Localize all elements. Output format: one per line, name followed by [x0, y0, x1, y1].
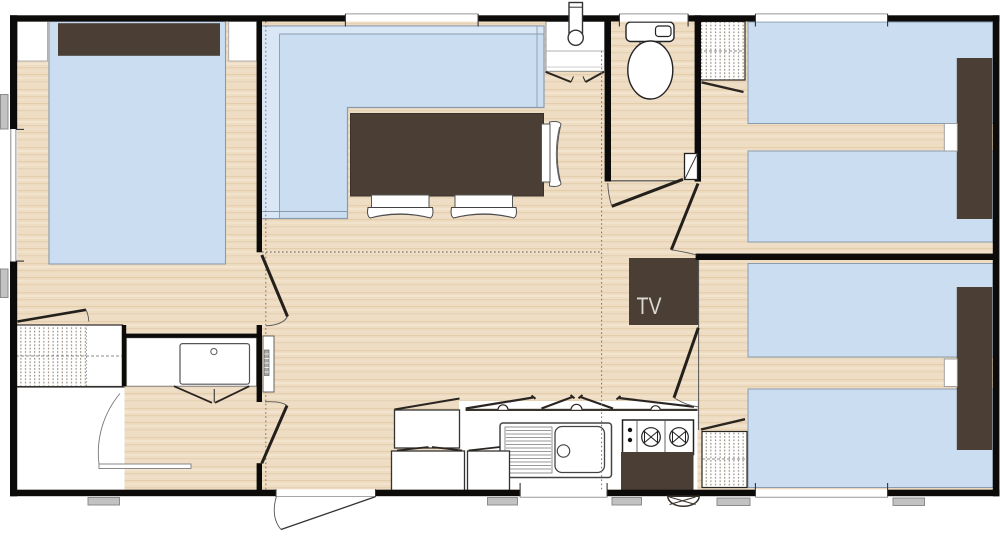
- svg-text:TV: TV: [637, 293, 662, 320]
